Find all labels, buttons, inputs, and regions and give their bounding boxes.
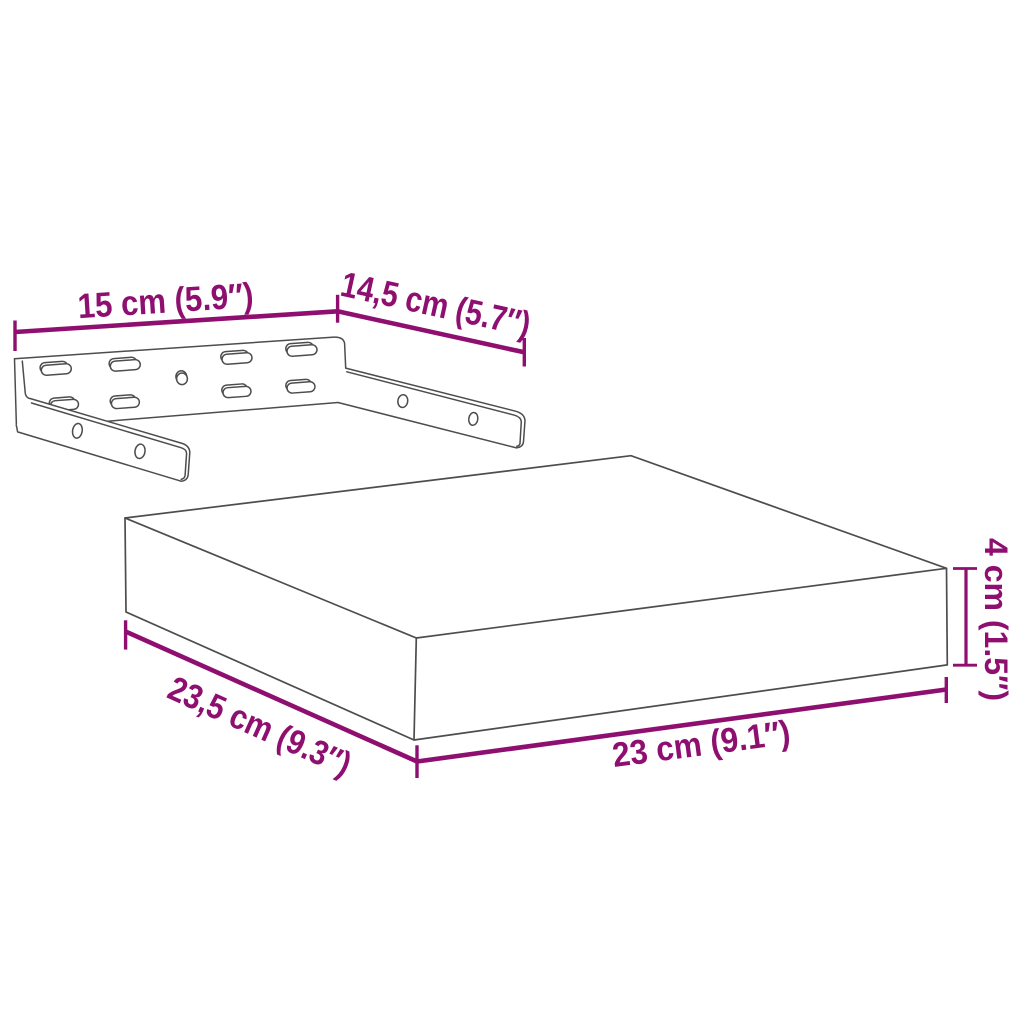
svg-text:4 cm (1.5″): 4 cm (1.5″) — [978, 538, 1014, 701]
